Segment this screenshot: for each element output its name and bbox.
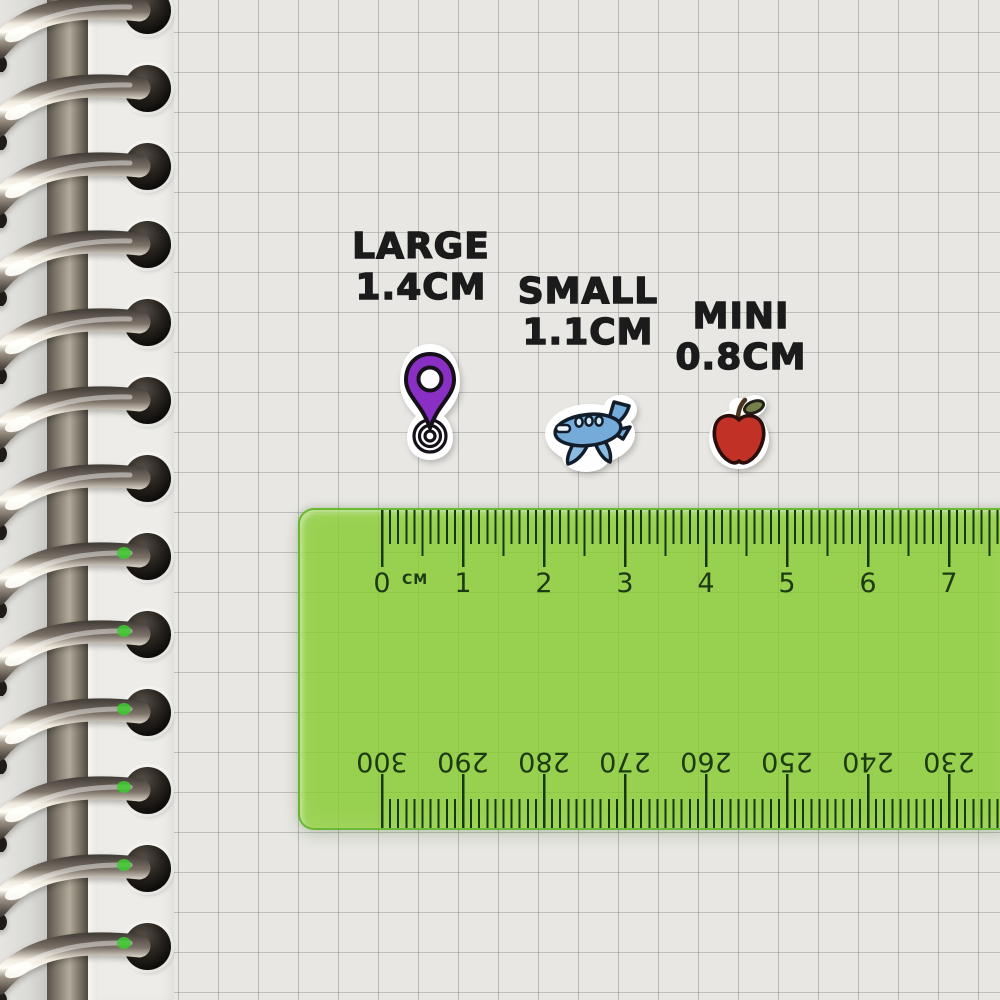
ruler-number: 3 — [616, 568, 633, 599]
punch-hole — [124, 143, 171, 190]
size-label-name: MINI — [621, 296, 861, 337]
punch-hole — [124, 533, 171, 580]
size-label-value: 0.8CM — [621, 337, 861, 378]
ruler-number: 2 — [535, 568, 552, 599]
apple-icon — [714, 398, 765, 463]
green-ruler: 0 CM 1 2 3 4 5 6 7 300 290 280 270 260 2… — [298, 508, 1000, 830]
ruler-cm-ticks-top — [381, 510, 1000, 567]
size-label-name: LARGE — [301, 226, 541, 267]
ruler-mm-number: 270 — [599, 746, 651, 777]
punch-hole — [124, 767, 171, 814]
notebook-back-edge — [0, 0, 47, 1000]
punch-hole — [124, 923, 171, 970]
ruler-mm-ticks-bottom — [381, 799, 1000, 828]
ruler-unit-label: CM — [402, 572, 428, 588]
ruler-number: 7 — [940, 568, 957, 599]
ruler-mm-number: 300 — [356, 746, 408, 777]
ruler-mm-number: 280 — [518, 746, 570, 777]
ruler-mm-number: 230 — [923, 746, 975, 777]
punch-hole — [124, 221, 171, 268]
airplane-sticker — [542, 392, 642, 474]
ruler-mm-number: 240 — [842, 746, 894, 777]
punch-hole — [124, 455, 171, 502]
size-label-mini: MINI 0.8CM — [621, 296, 861, 378]
punch-hole — [124, 299, 171, 346]
ruler-number: 0 — [373, 568, 390, 599]
punch-hole — [124, 377, 171, 424]
ruler-mm-number: 260 — [680, 746, 732, 777]
ruler-halfcm-ticks-top — [381, 510, 1000, 556]
ruler-number: 1 — [454, 568, 471, 599]
ruler-mm-number: 250 — [761, 746, 813, 777]
apple-sticker — [707, 394, 771, 470]
punch-hole — [124, 845, 171, 892]
punch-hole — [124, 611, 171, 658]
ruler-major-ticks-bottom — [381, 774, 1000, 828]
notebook-photo: LARGE 1.4CM SMALL 1.1CM MINI 0.8CM — [0, 0, 1000, 1000]
ruler-mm-number: 290 — [437, 746, 489, 777]
ruler-mm-ticks-top — [381, 510, 1000, 544]
location-pin-sticker — [398, 342, 462, 462]
punch-hole — [124, 689, 171, 736]
ruler-number: 4 — [697, 568, 714, 599]
punch-hole — [124, 65, 171, 112]
ruler-number: 5 — [778, 568, 795, 599]
binding-rod — [47, 0, 88, 1000]
page-edge-highlight — [88, 0, 98, 1000]
ruler-number: 6 — [859, 568, 876, 599]
